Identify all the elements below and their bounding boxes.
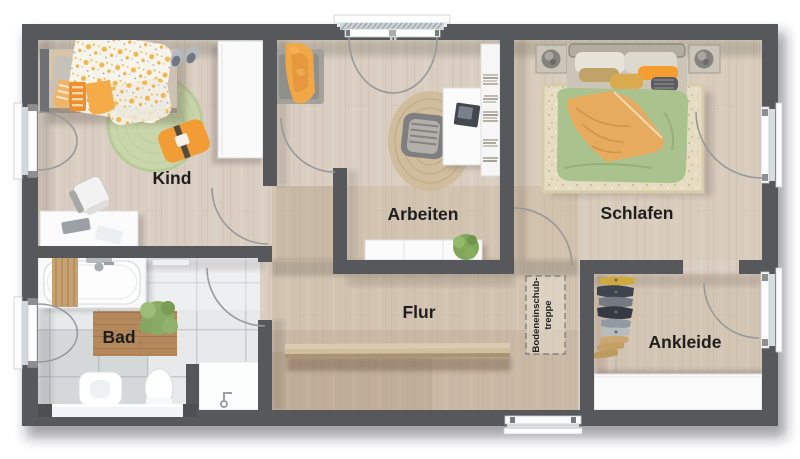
svg-text:Kind: Kind: [153, 168, 192, 188]
svg-text:Schlafen: Schlafen: [601, 203, 674, 223]
svg-text:treppe: treppe: [543, 300, 554, 329]
svg-text:Bodeneinschub-: Bodeneinschub-: [531, 277, 542, 352]
svg-text:Ankleide: Ankleide: [649, 332, 722, 352]
svg-text:Bad: Bad: [102, 327, 135, 347]
svg-text:Arbeiten: Arbeiten: [388, 204, 459, 224]
svg-text:Flur: Flur: [402, 302, 435, 322]
